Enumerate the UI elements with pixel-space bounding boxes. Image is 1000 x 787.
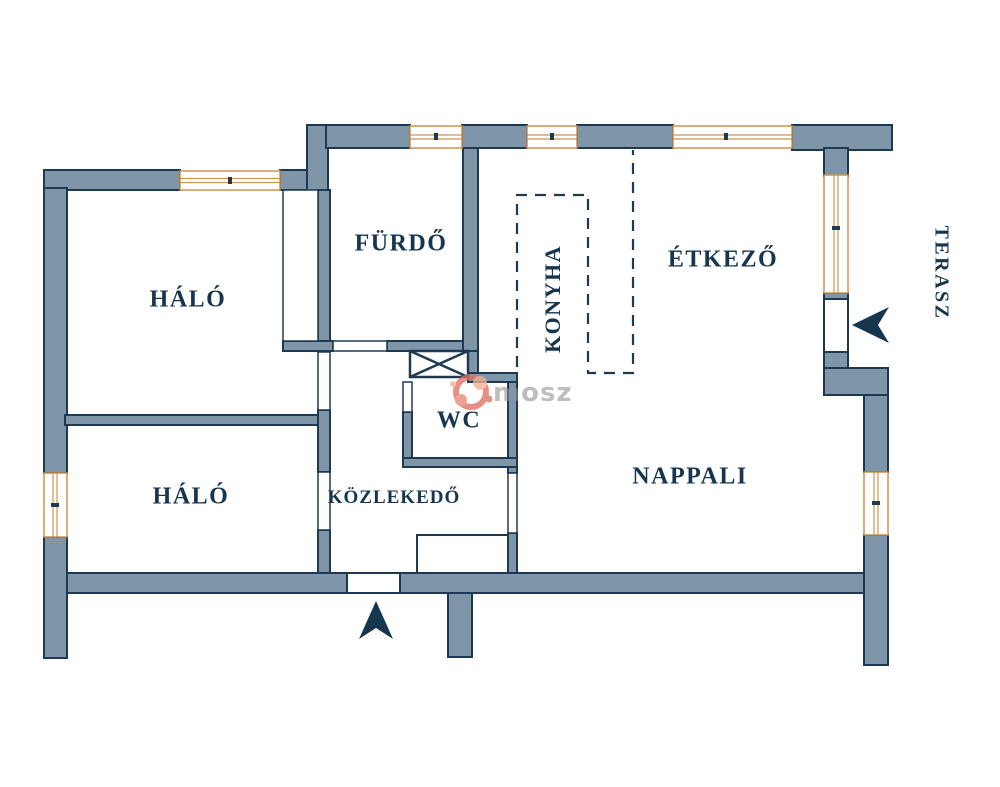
- room-label-corridor: KÖZLEKEDŐ: [328, 487, 461, 509]
- floor-plan: HÁLÓ FÜRDŐ KONYHA ÉTKEZŐ TERASZ HÁLÓ KÖZ…: [0, 0, 1000, 787]
- room-label-bedroom1: HÁLÓ: [150, 287, 227, 314]
- entrance-arrow-icon: [359, 601, 393, 639]
- room-label-terrace: TERASZ: [930, 225, 953, 320]
- room-label-dining: ÉTKEZŐ: [668, 247, 778, 274]
- bedroom1-door-opening: [318, 352, 330, 410]
- terrace-door-opening: [824, 299, 848, 352]
- livingroom-window: [864, 472, 888, 535]
- bathroom-door-opening: [333, 341, 387, 351]
- bedroom1-niche: [283, 190, 318, 341]
- corridor-closet-box: [417, 535, 508, 573]
- room-label-bedroom2: HÁLÓ: [153, 484, 230, 511]
- room-label-livingroom: NAPPALI: [632, 464, 747, 491]
- room-label-bathroom: FÜRDŐ: [355, 231, 448, 258]
- kitchen-dashed-boundary: [517, 150, 633, 373]
- room-label-wc: WC: [437, 408, 481, 435]
- entrance-door-opening: [347, 573, 400, 593]
- watermark-text: mosz: [493, 378, 573, 408]
- livingroom-door-opening: [508, 473, 517, 533]
- bedroom1-window: [180, 171, 280, 190]
- dining-window: [673, 126, 792, 148]
- room-label-kitchen: KONYHA: [540, 245, 566, 353]
- wc-door-opening: [403, 382, 412, 412]
- shaft-symbol: [410, 351, 468, 377]
- bathroom-window: [410, 126, 462, 148]
- terrace-arrow-icon: [852, 307, 889, 343]
- kitchen-window: [527, 126, 577, 148]
- bedroom2-window: [44, 473, 67, 537]
- terrace-window: [824, 175, 848, 293]
